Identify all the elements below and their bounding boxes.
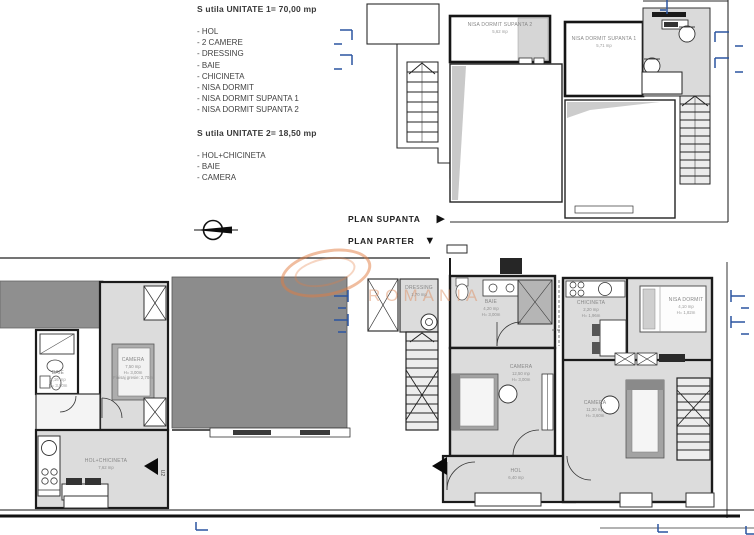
plan-supanta-drawing	[330, 0, 754, 255]
room-baie-unit1	[450, 276, 574, 348]
supanta-landing	[642, 8, 710, 96]
door-u1-arrow-icon	[432, 457, 447, 475]
washing-machine-icon	[421, 314, 437, 330]
supanta-void-right	[565, 100, 675, 218]
door-u2-label: U2	[159, 470, 165, 476]
supanta-void-left	[450, 64, 562, 202]
supanta-stair-left	[407, 62, 438, 142]
supanta-stair-right	[680, 96, 710, 184]
right-unit	[563, 278, 712, 502]
gray-block	[172, 277, 350, 437]
room-baie-unit2	[36, 330, 78, 394]
room-camera-unit1	[450, 348, 555, 456]
north-arrow-icon	[194, 216, 240, 244]
shaft-box	[368, 279, 398, 331]
dressing-and-stair	[400, 279, 438, 430]
floor-plan-canvas: S utila UNITATE 1= 70,00 mp - HOL - 2 CA…	[0, 0, 754, 535]
room-camera-unit2	[100, 282, 168, 430]
room-nisa-supanta2	[450, 16, 550, 67]
plan-parter-drawing	[0, 250, 754, 535]
room-nisa-supanta1	[565, 22, 643, 96]
